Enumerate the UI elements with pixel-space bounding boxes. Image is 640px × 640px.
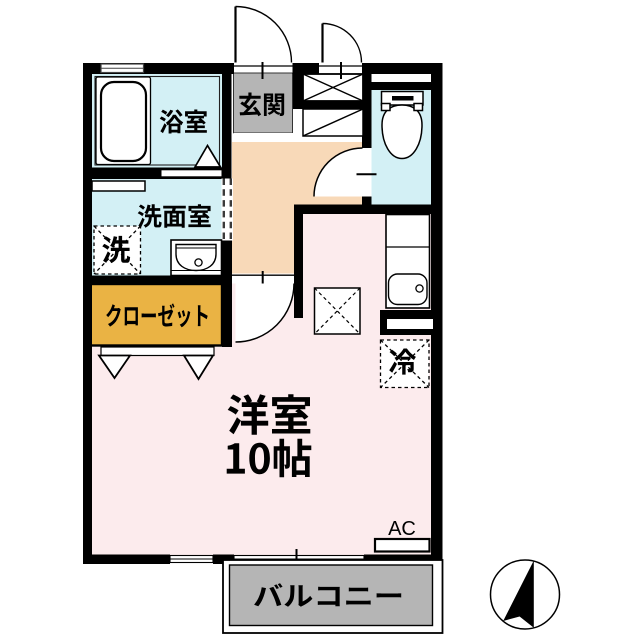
svg-text:AC: AC: [388, 518, 416, 540]
